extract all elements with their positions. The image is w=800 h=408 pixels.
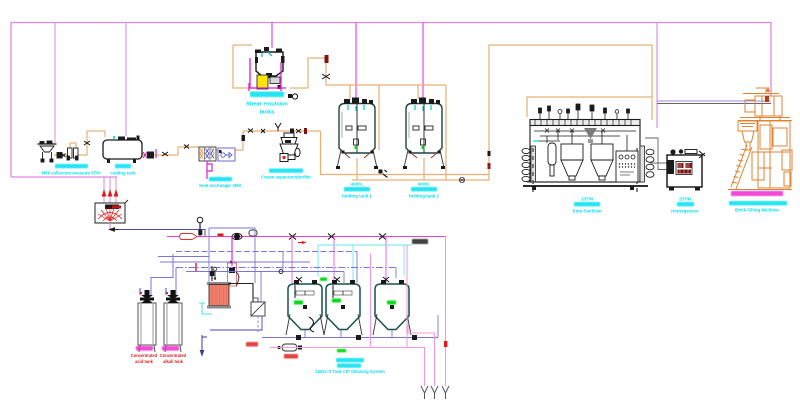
svg-text:1000L*3 Tank CIP Cleaning Syst: 1000L*3 Tank CIP Cleaning System [315,369,385,374]
svg-text:cooling tank: cooling tank [110,171,136,176]
svg-text:Heat exchanger 25M: Heat exchanger 25M [199,183,241,188]
svg-text:Homogenizer: Homogenizer [671,209,699,214]
svg-text:Tube Sterilizer: Tube Sterilizer [572,209,602,214]
svg-text:Shear emulsion: Shear emulsion [246,102,288,108]
svg-text:4000L: 4000L [418,182,431,187]
svg-text:holding tank 2: holding tank 2 [409,194,439,199]
svg-text:20T/H: 20T/H [679,197,691,202]
svg-text:20T/H: 20T/H [581,197,593,202]
svg-text:acid tank: acid tank [135,359,153,364]
svg-text:Concentrated: Concentrated [160,353,187,358]
svg-text:Cream separator/purifier: Cream separator/purifier [261,175,311,180]
svg-text:Brick Filling Machine: Brick Filling Machine [735,208,779,213]
svg-text:Milk collection measure 5T/H: Milk collection measure 5T/H [42,171,101,176]
svg-text:4000L: 4000L [351,182,364,187]
svg-text:alkali tank: alkali tank [163,359,184,364]
svg-text:holding tank 1: holding tank 1 [342,194,372,199]
svg-text:Concentrated: Concentrated [131,353,158,358]
svg-text:tanks: tanks [260,110,275,116]
